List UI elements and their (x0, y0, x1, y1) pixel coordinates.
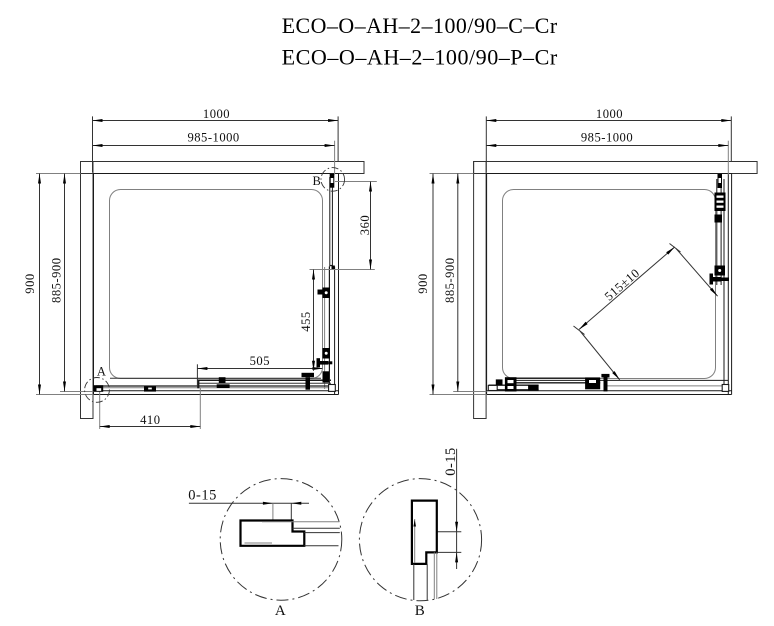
svg-text:360: 360 (358, 215, 372, 235)
svg-text:1000: 1000 (203, 107, 230, 121)
svg-text:410: 410 (140, 413, 160, 427)
svg-text:505: 505 (250, 354, 270, 368)
svg-text:455: 455 (299, 311, 313, 331)
svg-text:ECO–O–AH–2–100/90–C–Cr: ECO–O–AH–2–100/90–C–Cr (282, 13, 558, 38)
svg-text:900: 900 (23, 273, 37, 293)
svg-text:885-900: 885-900 (50, 257, 64, 302)
svg-text:B: B (312, 174, 321, 188)
svg-text:985-1000: 985-1000 (187, 131, 239, 145)
svg-text:A: A (97, 364, 107, 378)
svg-text:900: 900 (416, 273, 430, 293)
svg-text:985-1000: 985-1000 (581, 131, 633, 145)
svg-text:885-900: 885-900 (443, 257, 457, 302)
svg-text:A: A (275, 603, 286, 619)
svg-text:B: B (415, 603, 426, 619)
svg-text:ECO–O–AH–2–100/90–P–Cr: ECO–O–AH–2–100/90–P–Cr (282, 45, 558, 70)
svg-text:0-15: 0-15 (188, 488, 217, 504)
svg-text:1000: 1000 (596, 107, 623, 121)
